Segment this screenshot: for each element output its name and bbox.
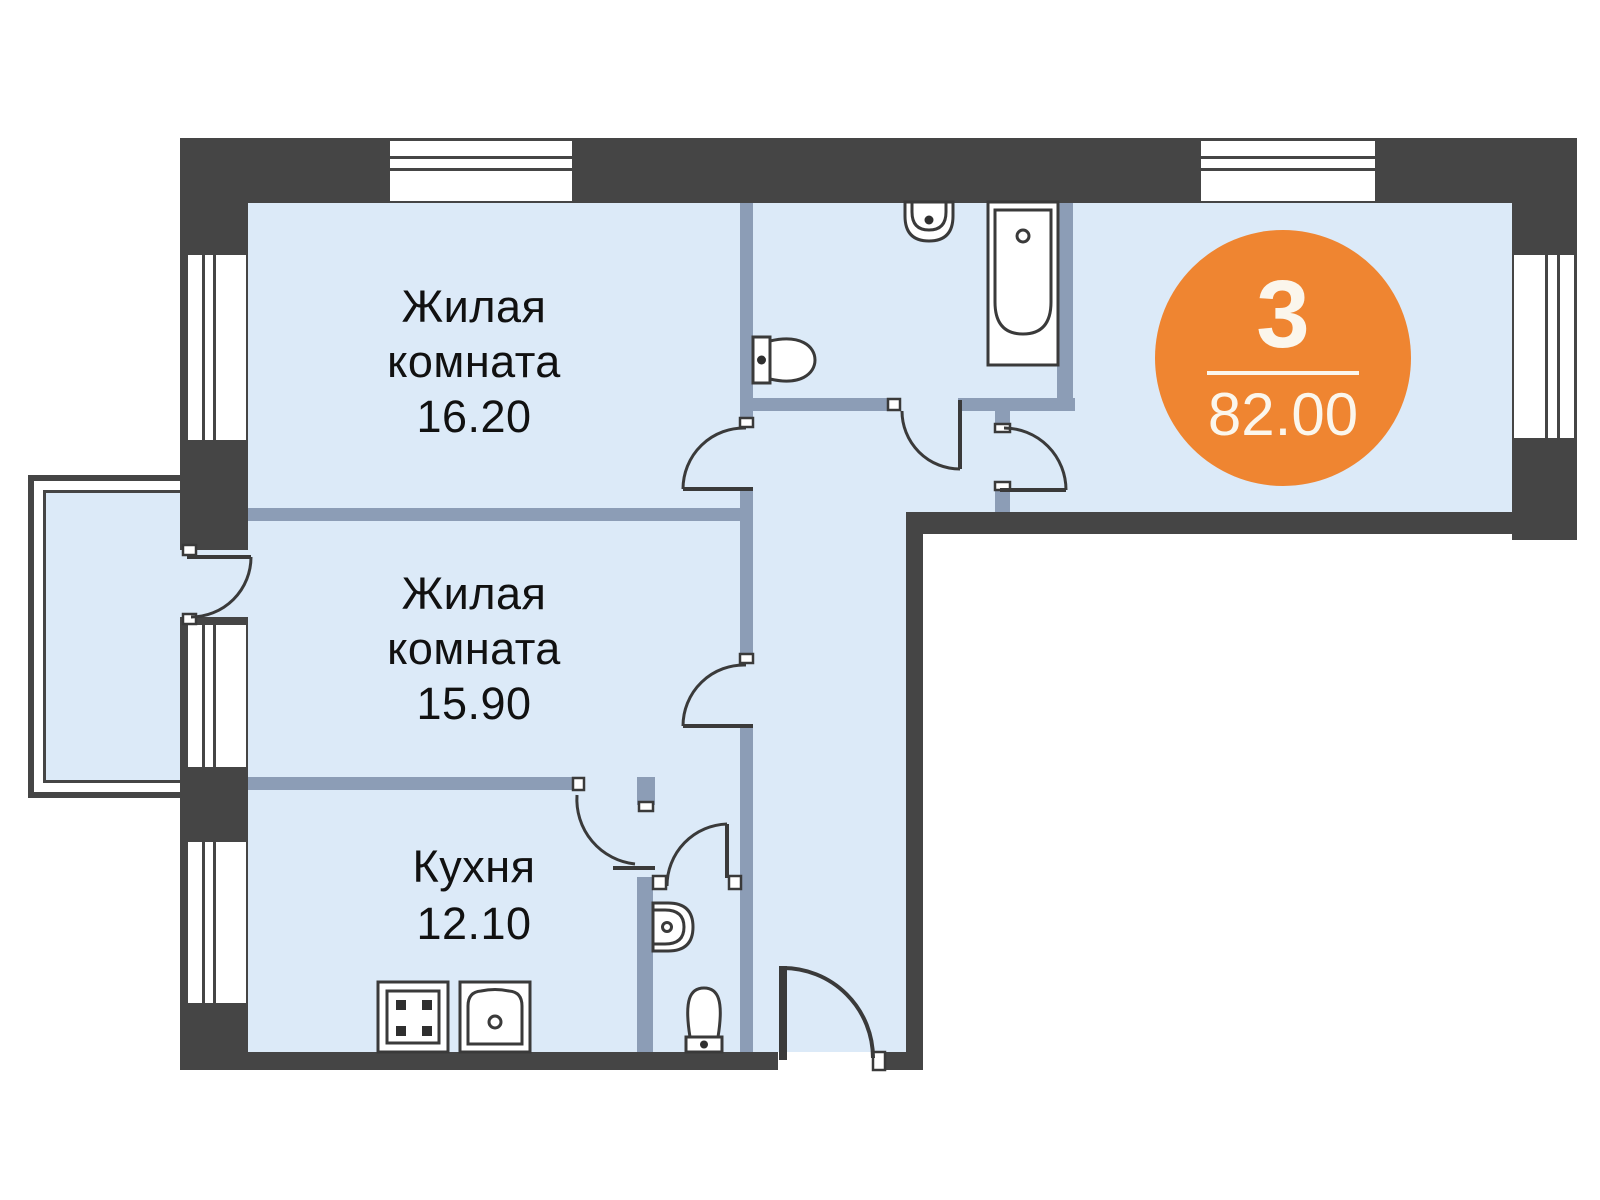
apartment-badge: 3 82.00 xyxy=(1155,230,1411,486)
room-name-line: Кухня xyxy=(314,838,634,895)
room-area-value: 15.90 xyxy=(314,676,634,731)
room-name-line: комната xyxy=(314,334,634,389)
badge-total-area: 82.00 xyxy=(1208,383,1358,447)
floor-plan: Жилая комната 16.20 Жилая комната 15.90 … xyxy=(0,0,1600,1200)
balcony-door-opening xyxy=(180,550,248,617)
window-room2 xyxy=(188,625,246,767)
room-area-value: 12.10 xyxy=(314,895,634,952)
window-room1 xyxy=(188,255,246,440)
wall-room1-room2 xyxy=(248,508,753,521)
wall-band-bottom xyxy=(906,512,1577,534)
wall-hall-vertical-b xyxy=(740,490,753,662)
room-name-line: комната xyxy=(314,621,634,676)
wall-bathroom-bottom-left xyxy=(753,398,900,411)
room-label-living1: Жилая комната 16.20 xyxy=(314,279,634,444)
window-kitchen xyxy=(188,842,246,1003)
wall-hall-stub-bottom xyxy=(995,487,1010,512)
badge-rooms-count: 3 xyxy=(1256,269,1309,361)
room-area-value: 16.20 xyxy=(314,389,634,444)
wall-stub-kitchen xyxy=(637,777,655,805)
wall-wc-left xyxy=(637,877,653,1052)
balcony-floor xyxy=(43,490,193,783)
wall-column-bottom-right xyxy=(885,1052,923,1070)
room-label-living2: Жилая комната 15.90 xyxy=(314,566,634,731)
balcony xyxy=(28,475,187,798)
wall-column-bottom-left xyxy=(248,1052,778,1070)
wall-room2-kitchen xyxy=(248,777,575,790)
wall-hall-vertical-a xyxy=(740,203,753,425)
room-name-line: Жилая xyxy=(314,279,634,334)
room-name-line: Жилая xyxy=(314,566,634,621)
window-top-left xyxy=(390,141,572,201)
wall-column-right xyxy=(906,512,923,1070)
window-hall xyxy=(1514,255,1574,438)
room-label-kitchen: Кухня 12.10 xyxy=(314,838,634,952)
wall-hall-stub-top xyxy=(995,411,1010,427)
wall-hall-vertical-c xyxy=(740,725,753,1052)
badge-divider xyxy=(1207,371,1359,375)
window-top-right xyxy=(1201,141,1375,201)
wall-bathroom-right xyxy=(1057,203,1073,411)
